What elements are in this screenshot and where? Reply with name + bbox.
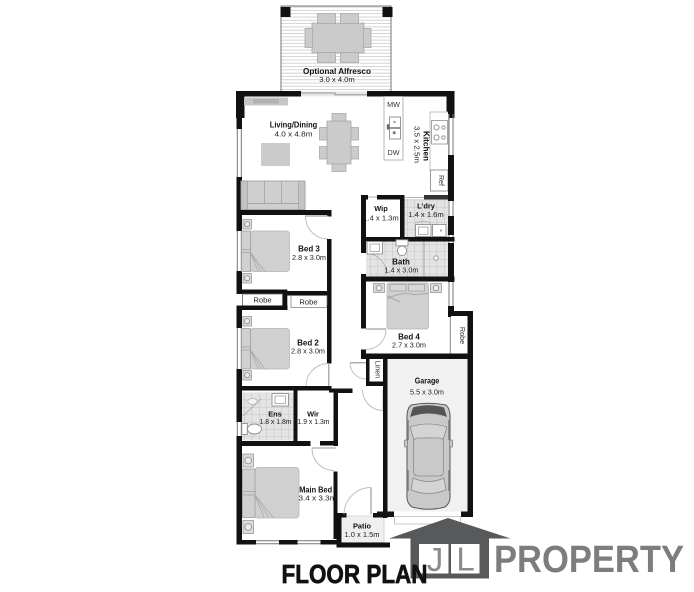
svg-text:3.5 x 2.5m: 3.5 x 2.5m: [413, 126, 422, 163]
svg-text:Ref: Ref: [437, 175, 444, 186]
svg-text:1.4 x 1.3m: 1.4 x 1.3m: [363, 214, 398, 223]
svg-text:Robe: Robe: [299, 298, 317, 307]
svg-text:4.0 x 4.8m: 4.0 x 4.8m: [275, 130, 313, 139]
svg-text:Living/Dining: Living/Dining: [270, 120, 318, 130]
svg-text:1.4 x 3.0m: 1.4 x 3.0m: [385, 266, 419, 275]
svg-text:3.0 x 4.0m: 3.0 x 4.0m: [319, 75, 355, 84]
svg-text:PROPERTY: PROPERTY: [494, 539, 684, 581]
svg-text:J: J: [427, 541, 444, 578]
svg-text:Robe: Robe: [458, 327, 467, 344]
svg-text:1.0 x 1.5m: 1.0 x 1.5m: [345, 530, 380, 539]
svg-text:L: L: [456, 541, 474, 578]
svg-text:5.5 x 3.0m: 5.5 x 3.0m: [410, 388, 444, 397]
svg-text:Garage: Garage: [415, 376, 440, 386]
svg-text:1.8 x 1.8m: 1.8 x 1.8m: [260, 417, 292, 426]
svg-text:1.9 x 1.3m: 1.9 x 1.3m: [298, 417, 330, 426]
svg-text:2.8 x 3.0m: 2.8 x 3.0m: [292, 253, 326, 262]
svg-text:1.4 x 1.6m: 1.4 x 1.6m: [408, 210, 443, 219]
svg-text:Linen: Linen: [374, 361, 383, 379]
svg-text:2.7 x 3.0m: 2.7 x 3.0m: [392, 341, 426, 350]
svg-text:2.8 x 3.0m: 2.8 x 3.0m: [291, 347, 325, 356]
svg-text:FLOOR PLAN: FLOOR PLAN: [282, 559, 428, 589]
svg-text:Robe: Robe: [253, 296, 271, 305]
svg-text:Wip: Wip: [374, 204, 388, 213]
svg-text:DW: DW: [388, 148, 400, 157]
svg-text:MW: MW: [387, 100, 400, 109]
svg-text:Kitchen: Kitchen: [422, 131, 431, 161]
svg-text:3.4 x 3.3m: 3.4 x 3.3m: [299, 494, 337, 503]
